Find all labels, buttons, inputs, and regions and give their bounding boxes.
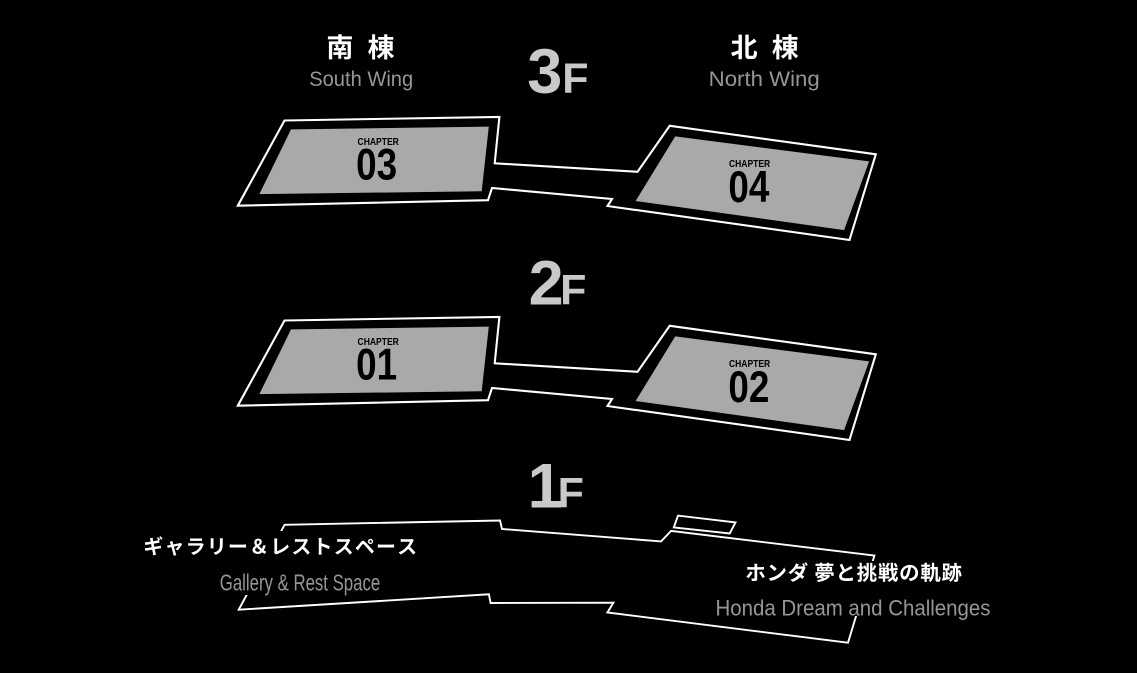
svg-text:South Wing: South Wing <box>309 68 413 91</box>
svg-text:Honda Dream and Challenges: Honda Dream and Challenges <box>716 596 991 621</box>
svg-text:North Wing: North Wing <box>709 68 820 91</box>
svg-text:03: 03 <box>356 141 397 190</box>
svg-text:Gallery & Rest Space: Gallery & Rest Space <box>220 570 380 596</box>
svg-text:02: 02 <box>728 363 769 412</box>
svg-text:01: 01 <box>356 341 397 390</box>
svg-text:04: 04 <box>728 163 769 212</box>
